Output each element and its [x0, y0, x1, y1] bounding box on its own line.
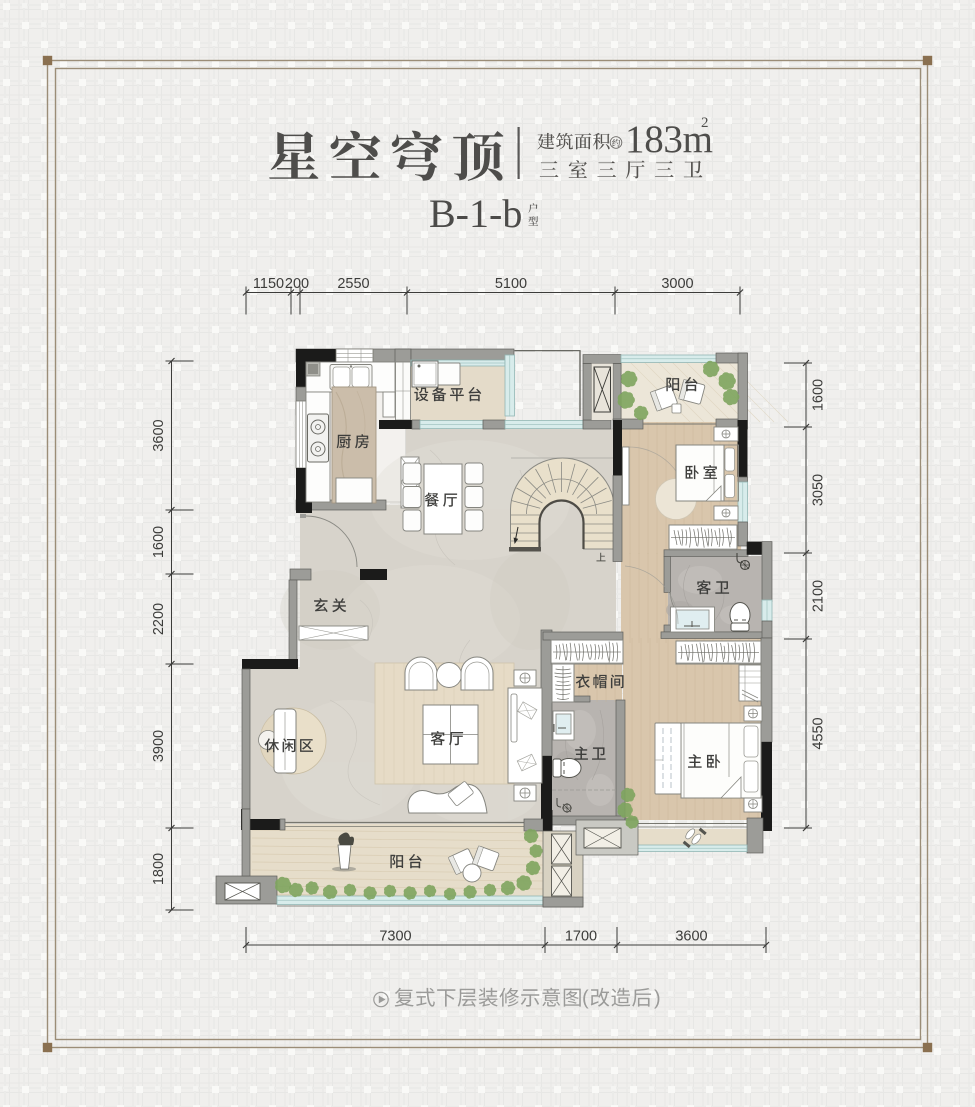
svg-text:B-1-b: B-1-b	[429, 191, 522, 236]
svg-text:3600: 3600	[675, 929, 707, 945]
svg-text:2: 2	[701, 115, 709, 131]
svg-text:3600: 3600	[151, 419, 167, 451]
svg-text:1700: 1700	[565, 929, 597, 945]
svg-text:): )	[654, 988, 661, 1010]
svg-text:4550: 4550	[811, 717, 827, 749]
svg-text:2200: 2200	[151, 603, 167, 635]
svg-text:1600: 1600	[811, 379, 827, 411]
svg-text:1150: 1150	[253, 276, 284, 292]
svg-text:183m: 183m	[625, 118, 713, 161]
svg-text:3900: 3900	[151, 730, 167, 762]
svg-text:200: 200	[285, 276, 309, 292]
svg-text:5100: 5100	[495, 276, 527, 292]
svg-text:(: (	[582, 988, 589, 1010]
svg-text:2550: 2550	[337, 276, 369, 292]
svg-text:7300: 7300	[379, 929, 411, 945]
svg-text:1600: 1600	[151, 526, 167, 558]
svg-text:3050: 3050	[811, 474, 827, 506]
svg-text:3000: 3000	[661, 276, 693, 292]
svg-text:1800: 1800	[151, 853, 167, 885]
svg-text:2100: 2100	[811, 580, 827, 612]
